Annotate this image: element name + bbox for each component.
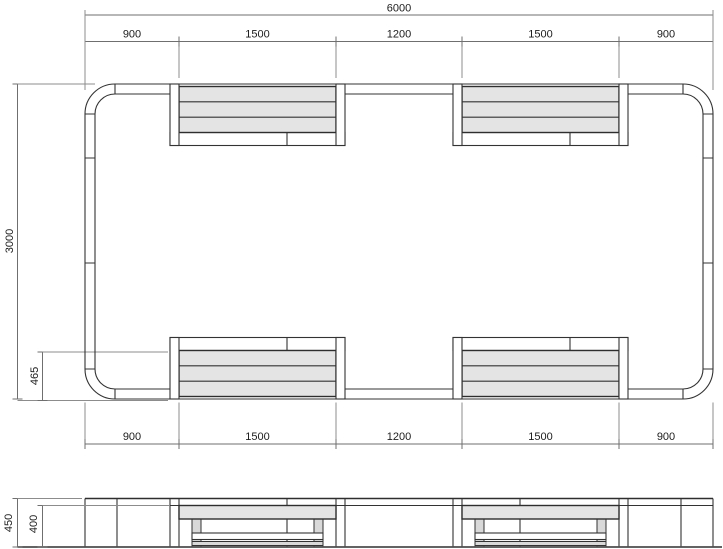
bench-backrest-beam (453, 338, 628, 351)
dim-label-bottom-seg-5: 900 (657, 431, 675, 443)
dim-label-top-seg-2: 1500 (245, 29, 269, 41)
dim-label-top-seg-4: 1500 (528, 29, 552, 41)
bench-bottom-right (453, 338, 628, 400)
bench-seat-slab (462, 506, 619, 520)
bench-seat-slab (179, 506, 336, 520)
dim-left: 3000 465 (4, 84, 168, 401)
bench-slats (462, 351, 619, 397)
bench-backrest-beam (170, 133, 345, 146)
bench-side-panel-right (336, 338, 345, 400)
dim-top: 6000 900 1500 1200 1500 900 (85, 3, 713, 91)
bench-slats (179, 351, 336, 397)
bench-top-right (453, 84, 628, 146)
bench-top-left (170, 84, 345, 146)
dim-extension-plan-height (18, 84, 169, 401)
bench-slats (462, 87, 619, 133)
dim-elevation: 450 400 (3, 499, 170, 548)
bench-side-panel-left (170, 84, 179, 146)
dim-label-top-seg-5: 900 (657, 29, 675, 41)
side-elevation: 450 400 (3, 499, 722, 548)
dim-label-bottom-seg-1: 900 (123, 431, 141, 443)
technical-drawing: 6000 900 1500 1200 1500 900 3000 465 (0, 0, 723, 549)
bench-side-panel-left (453, 338, 462, 400)
dim-label-top-seg-1: 900 (123, 29, 141, 41)
dim-label-top-seg-3: 1200 (387, 29, 411, 41)
bench-backrest-beam (170, 338, 345, 351)
bench-side-panel-right (619, 338, 628, 400)
drawing-sheet: 6000 900 1500 1200 1500 900 3000 465 (0, 0, 723, 549)
bench-side-panel-left (453, 84, 462, 146)
elevation-bench-left (179, 499, 336, 548)
bench-side-panel-right (336, 84, 345, 146)
dim-extension-lines-top (85, 10, 713, 90)
dim-bottom: 900 1500 1200 1500 900 (85, 403, 713, 450)
dim-label-plan-height: 3000 (4, 229, 16, 253)
bench-slats (179, 87, 336, 133)
dim-label-bottom-seg-4: 1500 (528, 431, 552, 443)
bench-bottom-rail (475, 542, 606, 546)
dim-label-bottom-seg-2: 1500 (245, 431, 269, 443)
bench-bottom-rail (192, 542, 323, 546)
dim-label-total-width: 6000 (387, 3, 411, 15)
elevation-bench-right (462, 499, 619, 548)
bench-bottom-left (170, 338, 345, 400)
bench-side-panel-right (619, 84, 628, 146)
bench-stretcher (192, 533, 323, 540)
dim-label-bench-offset: 465 (29, 367, 41, 385)
bench-backrest-beam (453, 133, 628, 146)
dim-label-bottom-seg-3: 1200 (387, 431, 411, 443)
bench-side-panel-left (170, 338, 179, 400)
dim-label-seat-height: 400 (28, 515, 40, 533)
bench-stretcher (475, 533, 606, 540)
dim-label-overall-height: 450 (3, 514, 15, 532)
